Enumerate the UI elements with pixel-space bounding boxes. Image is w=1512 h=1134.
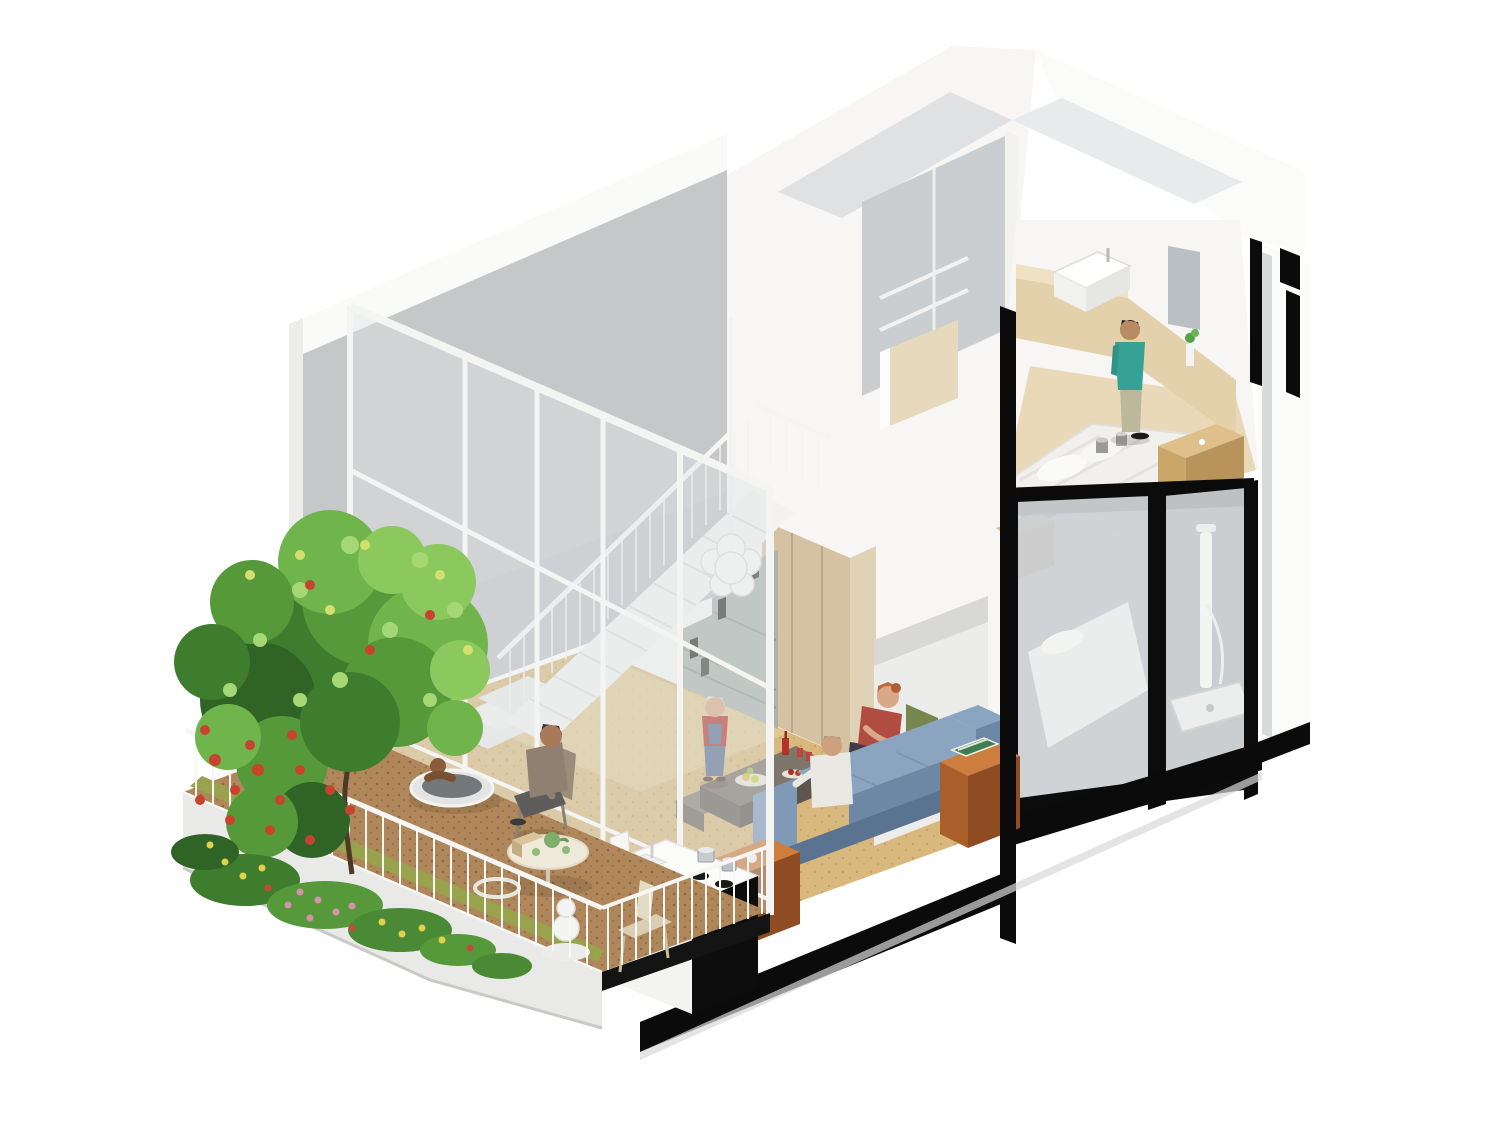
cooking-pot (698, 847, 714, 862)
teapot (544, 832, 560, 848)
head (540, 725, 562, 747)
cut-edge-black (1286, 290, 1300, 398)
cut-edge-black (1250, 238, 1262, 386)
burner-icon (715, 880, 733, 888)
legs (1120, 386, 1142, 432)
apartment-cutaway-scene (0, 0, 1512, 1134)
torso (810, 752, 853, 808)
cube-front (940, 762, 968, 848)
drain (1206, 704, 1214, 712)
sculpture-body (553, 915, 579, 941)
shoe-icon (1131, 433, 1149, 440)
hair-bun (891, 683, 901, 693)
head (1120, 320, 1140, 340)
upper-window-jamb (880, 348, 890, 430)
teacup (562, 846, 570, 854)
corner-connector-black (1000, 306, 1016, 944)
teacup (532, 848, 540, 856)
berries (788, 769, 794, 775)
plant-icon (1191, 329, 1199, 337)
mirror-door (1168, 246, 1200, 330)
sculpture-top (557, 899, 575, 917)
torso (1115, 342, 1145, 390)
knob (1199, 439, 1205, 445)
head (822, 736, 842, 756)
red-bottle (782, 738, 789, 755)
plant-pedestal (1186, 344, 1194, 366)
sculpture-base (542, 943, 590, 961)
bottle-neck (785, 731, 788, 739)
render-canvas (0, 0, 1512, 1134)
glass-frame-mid (1148, 488, 1166, 810)
right-edge-walls (1250, 238, 1310, 764)
shower-head-icon (1196, 524, 1216, 532)
shoe-icon (510, 819, 526, 826)
right-wall-inner-sliver (1262, 252, 1272, 738)
red-glass (797, 748, 803, 757)
bather-shoulders (428, 775, 452, 778)
